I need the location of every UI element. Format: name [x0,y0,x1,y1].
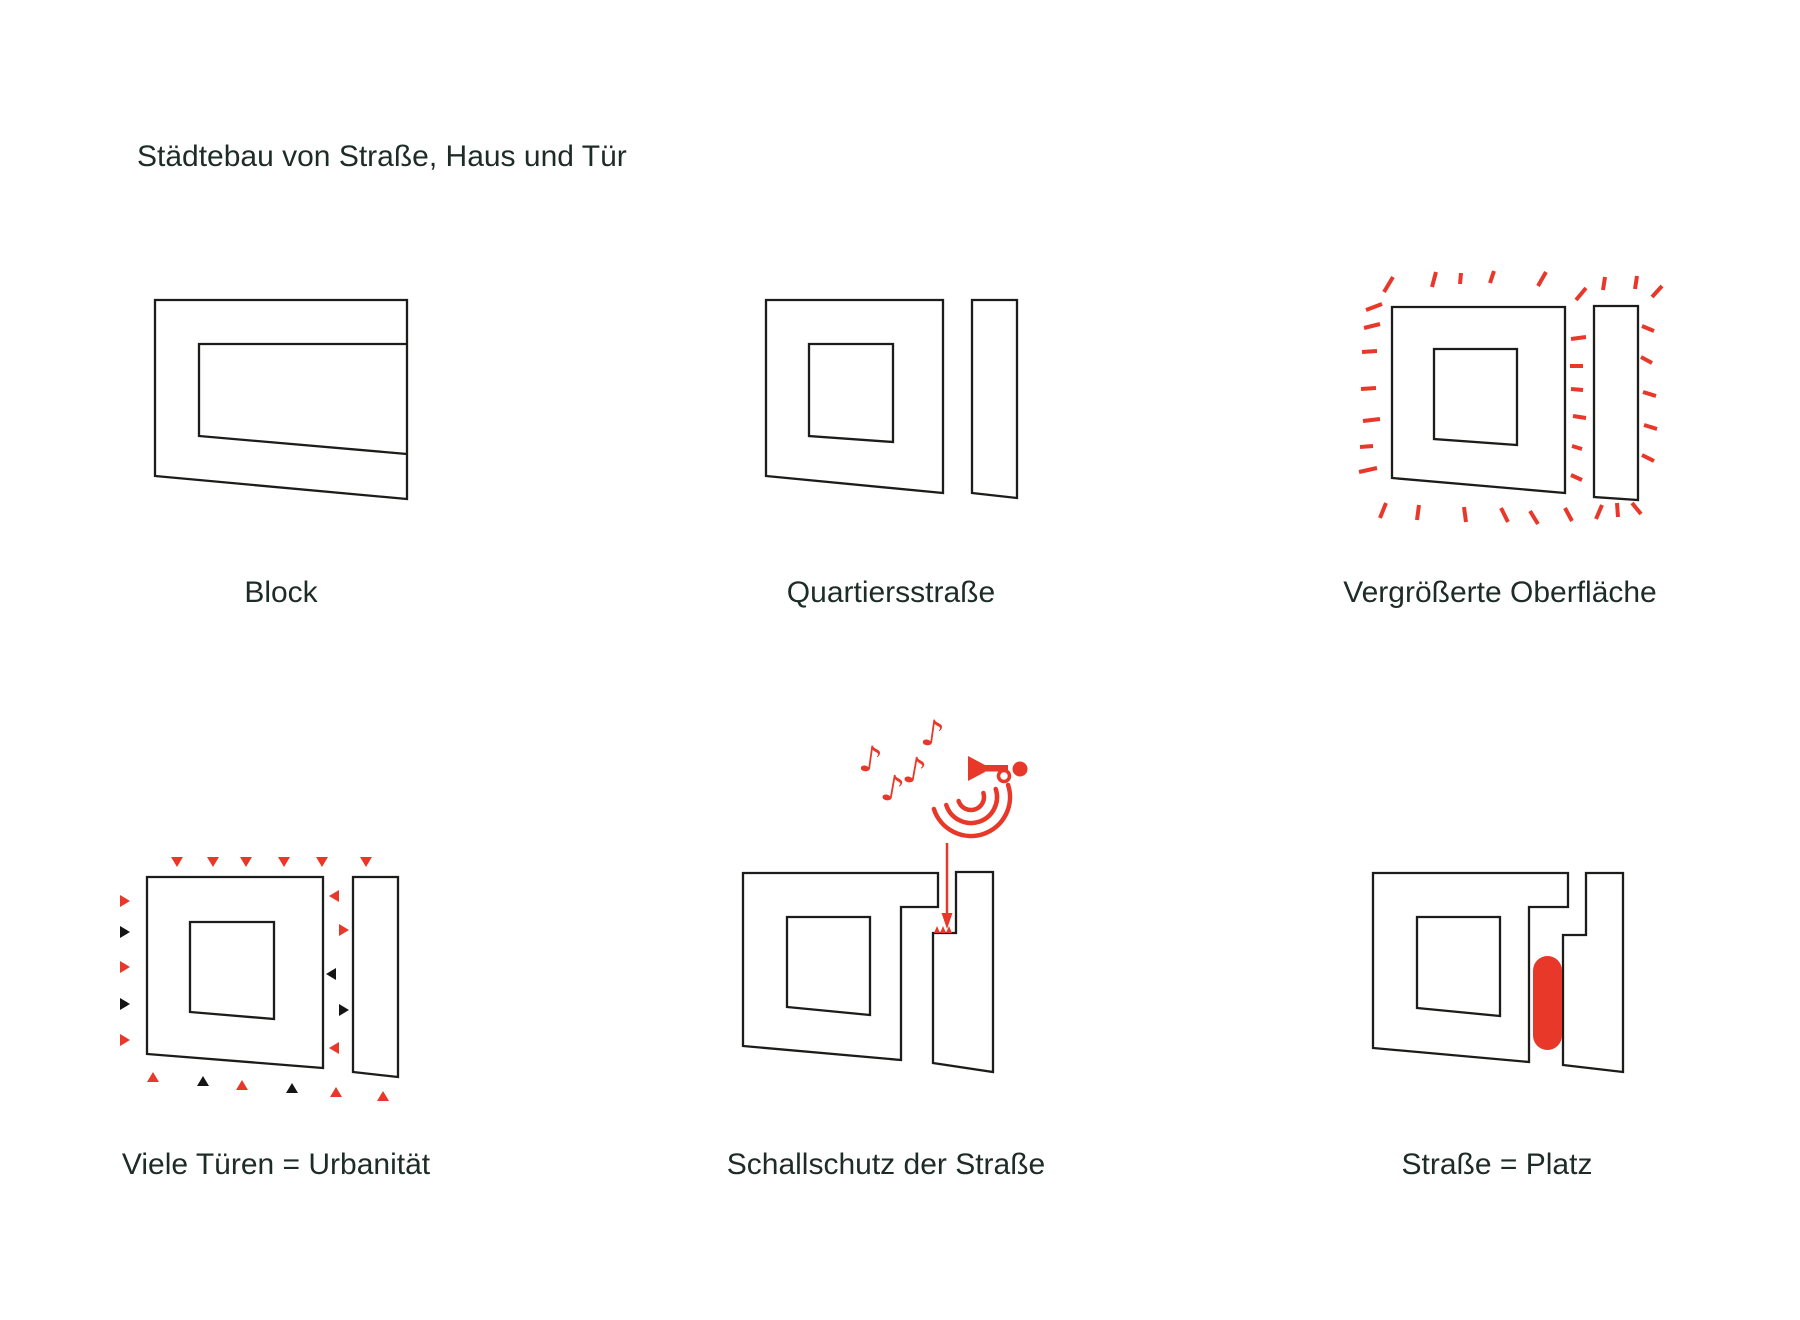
diagram-label-block: Block [244,576,317,610]
door-triangle-red [377,1091,389,1101]
viele-tueren-diagram [120,857,398,1101]
door-triangle-black [120,998,130,1010]
radiating-dash [1617,503,1618,517]
door-triangle-red [207,857,219,867]
horn-mouthpiece [1013,762,1028,777]
door-triangle-red [120,961,130,973]
radiating-dash [1641,357,1652,363]
plaza-capsule [1533,956,1562,1050]
horn-loop [999,771,1010,782]
door-triangle-black [286,1083,298,1093]
courtyard-outline [809,344,893,442]
radiating-dash [1565,508,1572,521]
absorber-teeth [934,926,952,933]
block-outer-outline [155,300,407,499]
radiating-dash [1363,419,1380,421]
strasse-platz-diagram [1373,873,1623,1072]
street-strip-outline [1594,306,1638,500]
door-triangle-black [339,1004,349,1016]
music-note-icon: ♪ [918,712,946,756]
diagram-label-schallschutz: Schallschutz der Straße [727,1148,1045,1182]
door-triangle-red [120,1034,130,1046]
street-strip-outline [972,300,1017,498]
radiating-dash [1362,351,1377,352]
noise-arrow-icon [942,843,953,929]
block-courtyard-outline [199,344,407,454]
door-triangle-red [360,857,372,867]
radiating-dash [1596,505,1602,519]
diagram-canvas: ♪ ♪ ♪ ♪ [0,0,1800,1320]
perimeter-block-outline [1392,307,1565,493]
perimeter-block-outline [766,300,943,493]
quartiersstrasse-diagram [766,300,1017,498]
diagram-label-vergroesserte-oberflaeche: Vergrößerte Oberfläche [1343,576,1657,610]
radiating-dash [1364,324,1380,328]
radiating-dash [1635,276,1637,289]
schallschutz-diagram: ♪ ♪ ♪ ♪ [743,712,1028,1072]
diagram-label-quartiersstrasse: Quartiersstraße [787,576,995,610]
radiating-dash [1360,446,1373,447]
perimeter-block-outline [147,877,323,1068]
street-strip-outline [933,872,993,1072]
door-triangle-black [197,1076,209,1086]
radiating-dash [1501,508,1508,522]
door-triangle-red [278,857,290,867]
sound-wave-arcs-icon [934,785,1020,846]
radiating-dash [1571,337,1586,339]
door-triangle-red [240,857,252,867]
sound-arc [959,793,988,813]
street-strip-outline [353,877,398,1077]
radiating-dash [1361,388,1376,389]
radiating-dash [1460,273,1461,284]
diagram-label-strasse-platz: Straße = Platz [1402,1148,1593,1182]
radiating-dash [1573,416,1586,418]
perimeter-block-outline [743,873,938,1060]
radiating-dash [1366,304,1382,310]
absorber-tooth [934,926,940,933]
courtyard-outline [1417,917,1500,1016]
radiating-dash [1538,272,1546,286]
door-triangle-red [171,857,183,867]
radiating-dash [1359,468,1377,472]
door-triangle-black [120,926,130,938]
radiating-dashes [1359,271,1662,524]
radiating-dash [1603,277,1605,290]
door-triangle-red [329,1042,339,1054]
radiating-dash [1632,503,1641,514]
radiating-dash [1571,389,1583,390]
absorber-tooth [940,926,946,933]
radiating-dash [1642,455,1654,461]
courtyard-outline [787,917,870,1015]
courtyard-outline [190,922,274,1019]
radiating-dash [1652,286,1662,297]
door-triangle-red [236,1080,248,1090]
door-triangle-red [330,1087,342,1097]
radiating-dash [1572,446,1582,449]
door-triangle-red [339,924,349,936]
door-triangles [120,857,389,1101]
courtyard-outline [1434,349,1517,445]
radiating-dash [1417,505,1419,520]
street-strip-outline [1563,873,1623,1072]
radiating-dash [1576,288,1586,300]
door-triangle-red [329,890,339,902]
door-triangle-red [316,857,328,867]
horn-bell [968,756,985,781]
radiating-dash [1571,475,1582,480]
radiating-dash [1380,503,1386,518]
radiating-dash [1530,511,1538,524]
door-triangle-red [120,895,130,907]
radiating-dash [1490,271,1494,283]
vergroesserte-oberflaeche-diagram [1359,271,1662,524]
noise-annotation: ♪ ♪ ♪ ♪ [856,712,1027,933]
radiating-dash [1432,272,1436,287]
radiating-dash [1644,425,1657,429]
radiating-dash [1384,277,1393,292]
block-diagram [155,300,407,499]
sound-arc [934,785,1020,846]
radiating-dash [1643,392,1656,396]
page-title: Städtebau von Straße, Haus und Tür [137,140,627,174]
music-note-icon: ♪ [856,738,884,782]
door-triangle-red [147,1072,159,1082]
music-note-icon: ♪ [900,749,930,793]
diagram-label-viele-tueren: Viele Türen = Urbanität [122,1148,430,1182]
radiating-dash [1464,507,1466,522]
door-triangle-black [326,968,336,980]
horn-icon [968,756,1028,782]
radiating-dash [1642,326,1654,331]
